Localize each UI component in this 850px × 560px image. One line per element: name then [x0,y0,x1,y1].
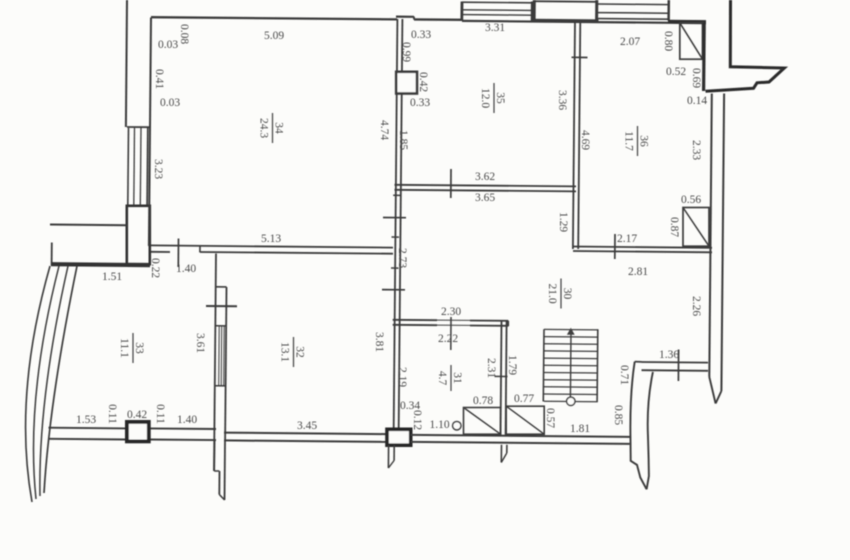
svg-text:3.31: 3.31 [485,22,505,34]
svg-text:11.7: 11.7 [623,131,635,151]
svg-text:35: 35 [494,92,506,104]
svg-text:33: 33 [133,342,145,354]
svg-text:0.11: 0.11 [106,404,118,424]
svg-text:0.12: 0.12 [411,410,423,430]
svg-text:3.23: 3.23 [152,159,164,179]
svg-text:4.69: 4.69 [579,130,591,150]
svg-text:3.36: 3.36 [556,90,568,110]
svg-text:0.85: 0.85 [612,405,624,425]
svg-text:3.65: 3.65 [475,192,495,204]
svg-text:34: 34 [273,122,285,134]
svg-text:0.52: 0.52 [666,66,686,78]
svg-text:0.33: 0.33 [410,97,430,109]
svg-text:0.14: 0.14 [687,95,707,107]
svg-text:1.40: 1.40 [176,263,196,275]
svg-text:1.40: 1.40 [177,414,197,426]
svg-text:2.81: 2.81 [628,266,648,278]
svg-text:1.51: 1.51 [102,271,122,283]
svg-text:0.42: 0.42 [127,409,147,421]
svg-text:36: 36 [638,135,650,147]
svg-text:30: 30 [561,288,573,300]
svg-text:0.57: 0.57 [544,408,556,428]
svg-text:0.08: 0.08 [178,24,190,44]
svg-text:4.74: 4.74 [378,120,390,140]
svg-text:32: 32 [294,346,306,358]
svg-text:0.87: 0.87 [668,217,680,237]
svg-text:31: 31 [451,372,463,384]
svg-text:0.22: 0.22 [149,258,161,278]
svg-text:1.10: 1.10 [429,419,449,431]
svg-text:0.56: 0.56 [681,194,701,206]
svg-text:1.53: 1.53 [76,414,96,426]
svg-text:2.22: 2.22 [438,333,458,345]
svg-text:5.09: 5.09 [264,30,284,42]
svg-text:12.0: 12.0 [479,88,491,108]
svg-text:1.85: 1.85 [397,130,409,150]
svg-text:3.81: 3.81 [373,332,385,352]
svg-text:2.73: 2.73 [396,248,408,268]
svg-text:4.7: 4.7 [436,371,448,386]
svg-text:0.11: 0.11 [154,404,166,424]
svg-text:2.30: 2.30 [441,306,461,318]
svg-text:0.33: 0.33 [411,29,431,41]
svg-text:2.17: 2.17 [617,233,637,245]
svg-text:1.79: 1.79 [506,355,518,375]
svg-text:2.26: 2.26 [690,296,702,316]
svg-text:2.19: 2.19 [396,367,408,387]
svg-text:0.42: 0.42 [417,72,429,92]
svg-text:1.81: 1.81 [570,423,590,435]
svg-text:2.07: 2.07 [620,36,640,48]
svg-text:3.62: 3.62 [475,171,495,183]
svg-text:21.0: 21.0 [546,283,558,303]
svg-text:0.77: 0.77 [514,393,534,405]
svg-text:1.36: 1.36 [659,349,679,361]
svg-text:2.33: 2.33 [690,140,702,160]
svg-text:0.78: 0.78 [473,395,493,407]
svg-text:13.1: 13.1 [279,342,291,362]
svg-text:0.71: 0.71 [618,365,630,385]
svg-text:3.45: 3.45 [297,420,317,432]
svg-text:3.61: 3.61 [194,333,206,353]
svg-text:24.3: 24.3 [258,118,270,138]
svg-text:5.13: 5.13 [261,233,281,245]
svg-text:2.31: 2.31 [485,358,497,378]
svg-text:11.1: 11.1 [118,338,130,358]
svg-text:0.03: 0.03 [160,97,180,109]
svg-text:0.03: 0.03 [158,39,178,51]
svg-text:0.69: 0.69 [690,68,702,88]
svg-text:0.80: 0.80 [662,31,674,51]
svg-text:0.99: 0.99 [400,42,412,62]
svg-text:1.29: 1.29 [557,212,569,232]
svg-text:0.41: 0.41 [153,69,165,89]
